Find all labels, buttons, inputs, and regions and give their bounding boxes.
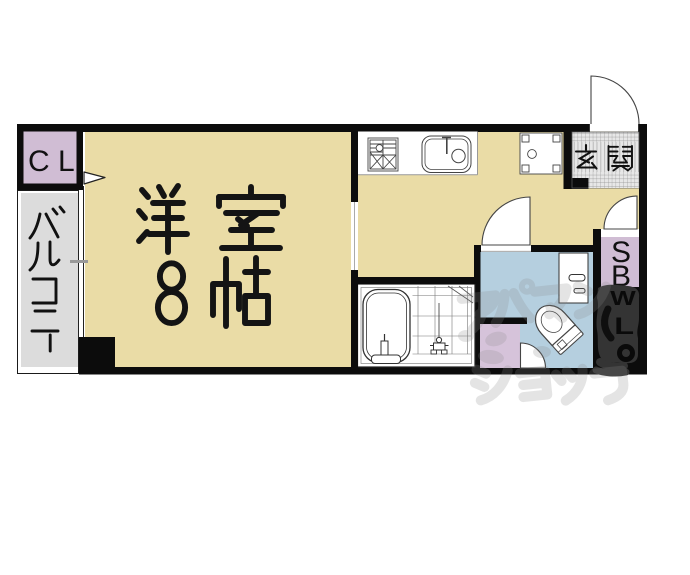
svg-text:W: W (610, 287, 636, 310)
svg-text:C: C (28, 145, 50, 178)
svg-text:L: L (58, 145, 75, 178)
svg-text:L: L (614, 313, 634, 340)
